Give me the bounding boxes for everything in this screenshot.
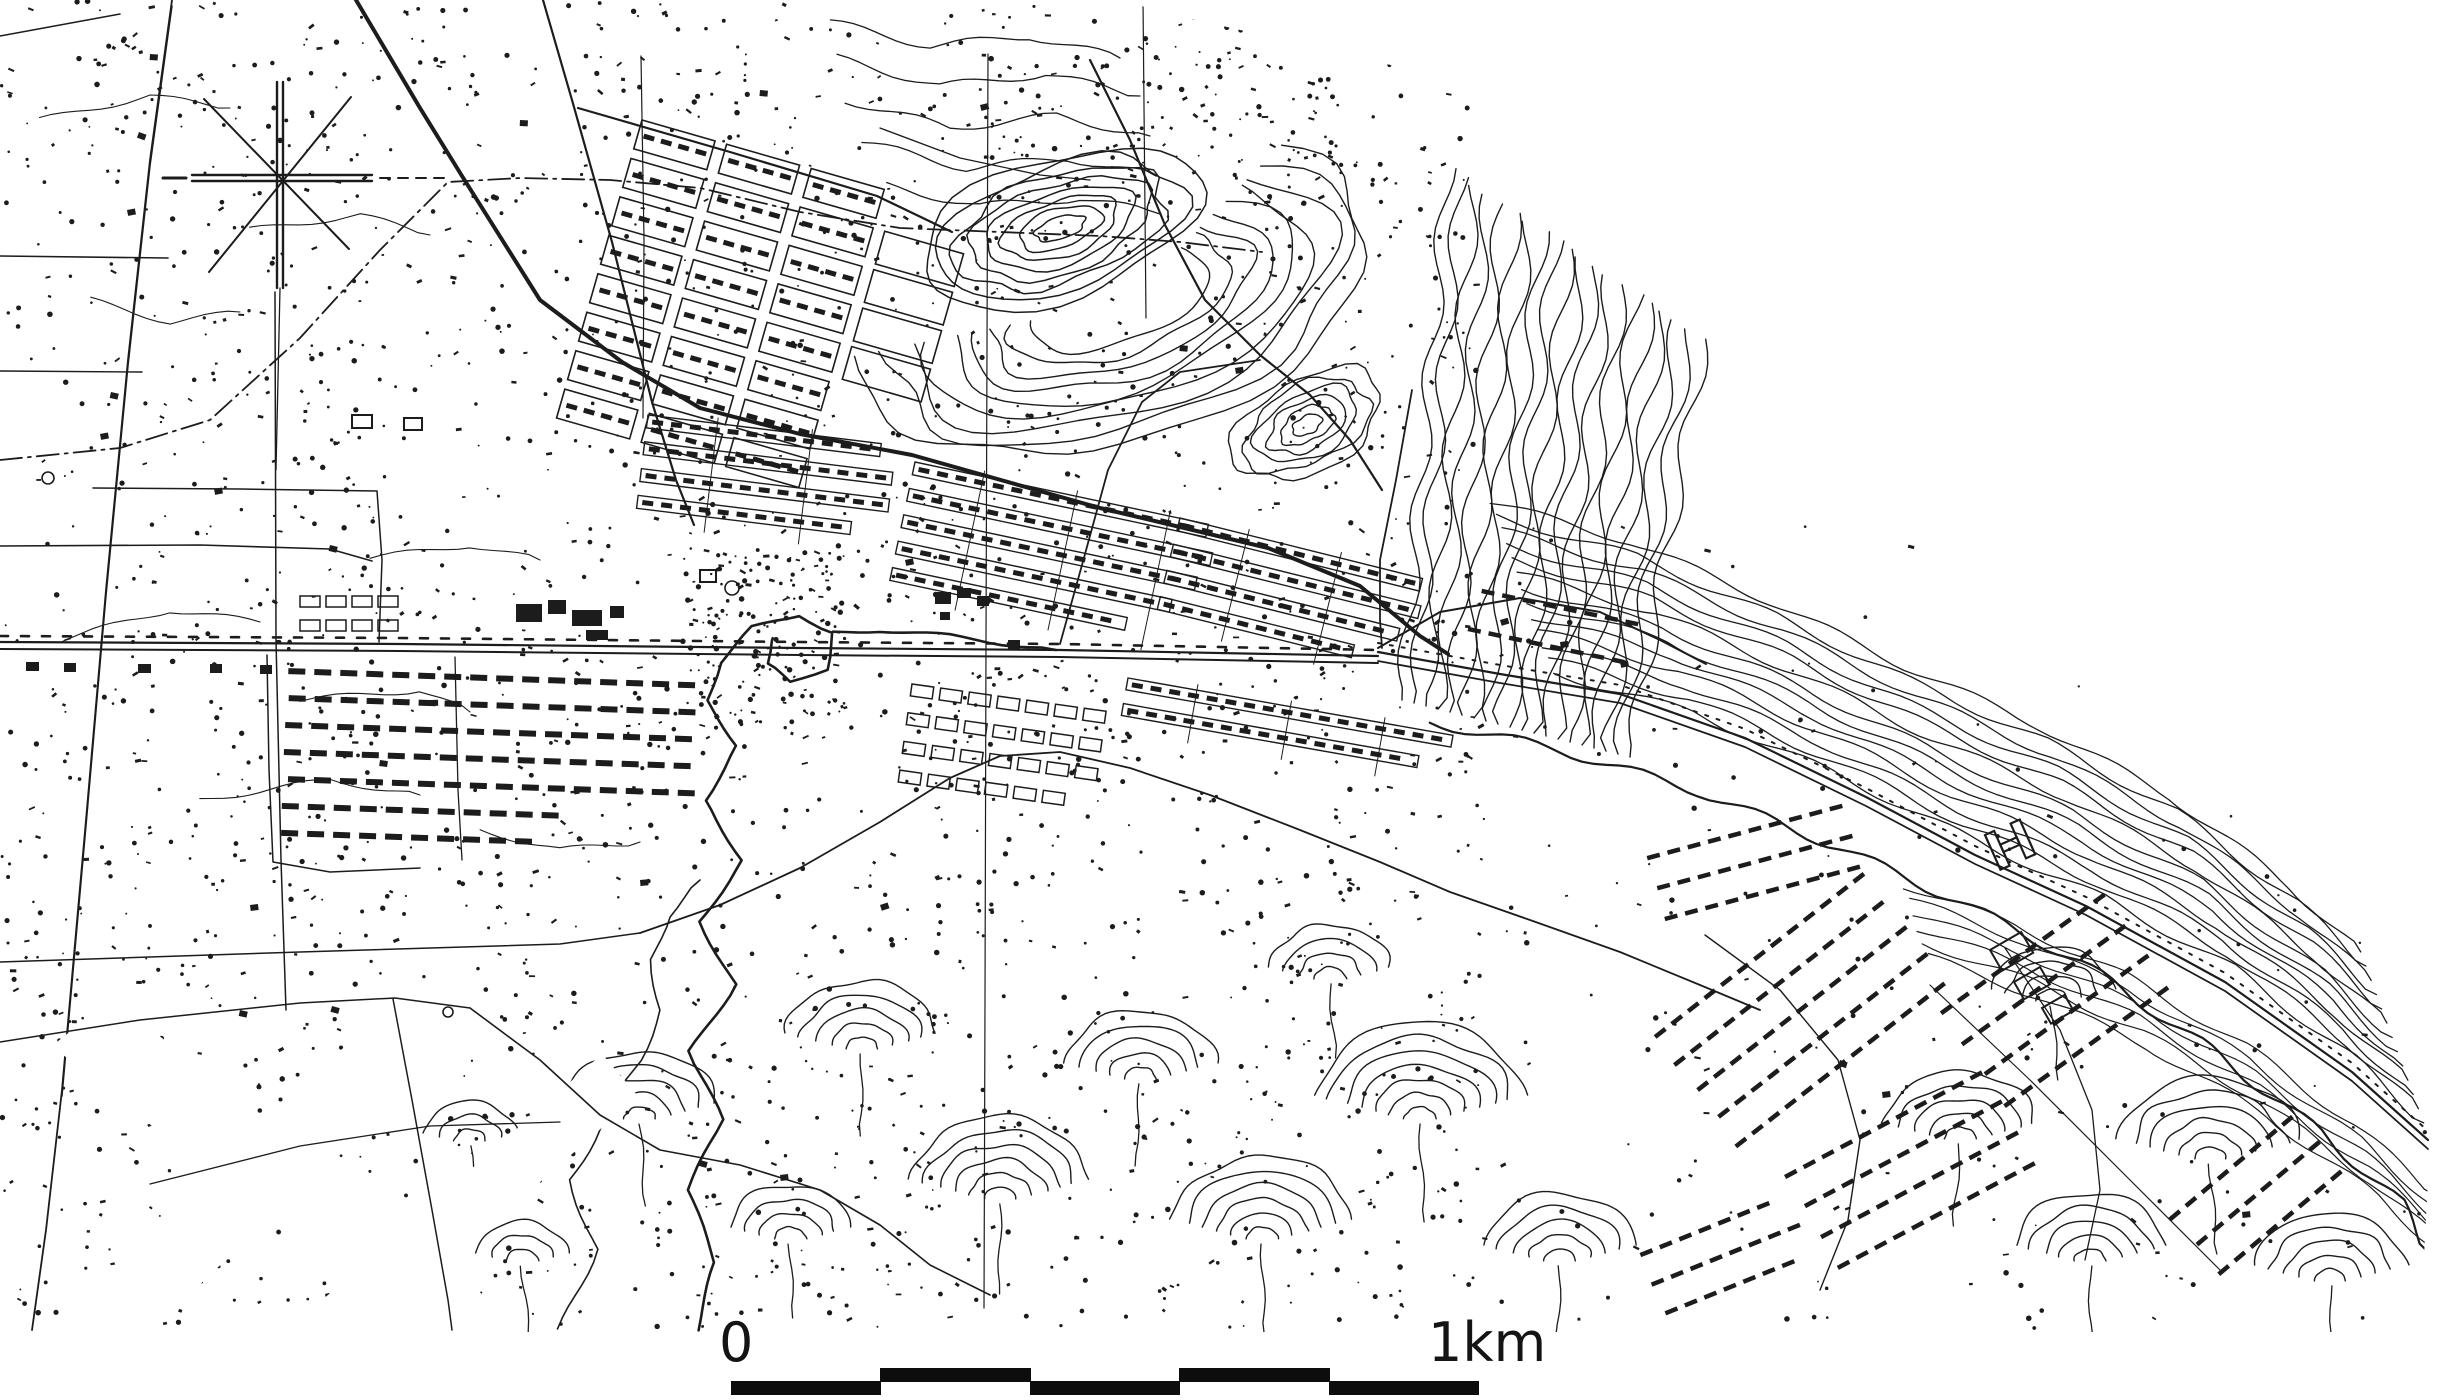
scale-bar-segment (731, 1381, 881, 1395)
map-screenshot: 0 1km (0, 0, 2454, 1400)
scale-bar-segment (1030, 1381, 1180, 1395)
map-content (0, 0, 2454, 1400)
scale-bar-segment (880, 1368, 1030, 1382)
topographic-map-canvas (0, 0, 2454, 1400)
scale-bar-segment (1179, 1368, 1329, 1382)
scale-start-label: 0 (719, 1316, 753, 1370)
scale-end-label: 1km (1428, 1316, 1546, 1370)
scale-bar-segment (1329, 1381, 1479, 1395)
